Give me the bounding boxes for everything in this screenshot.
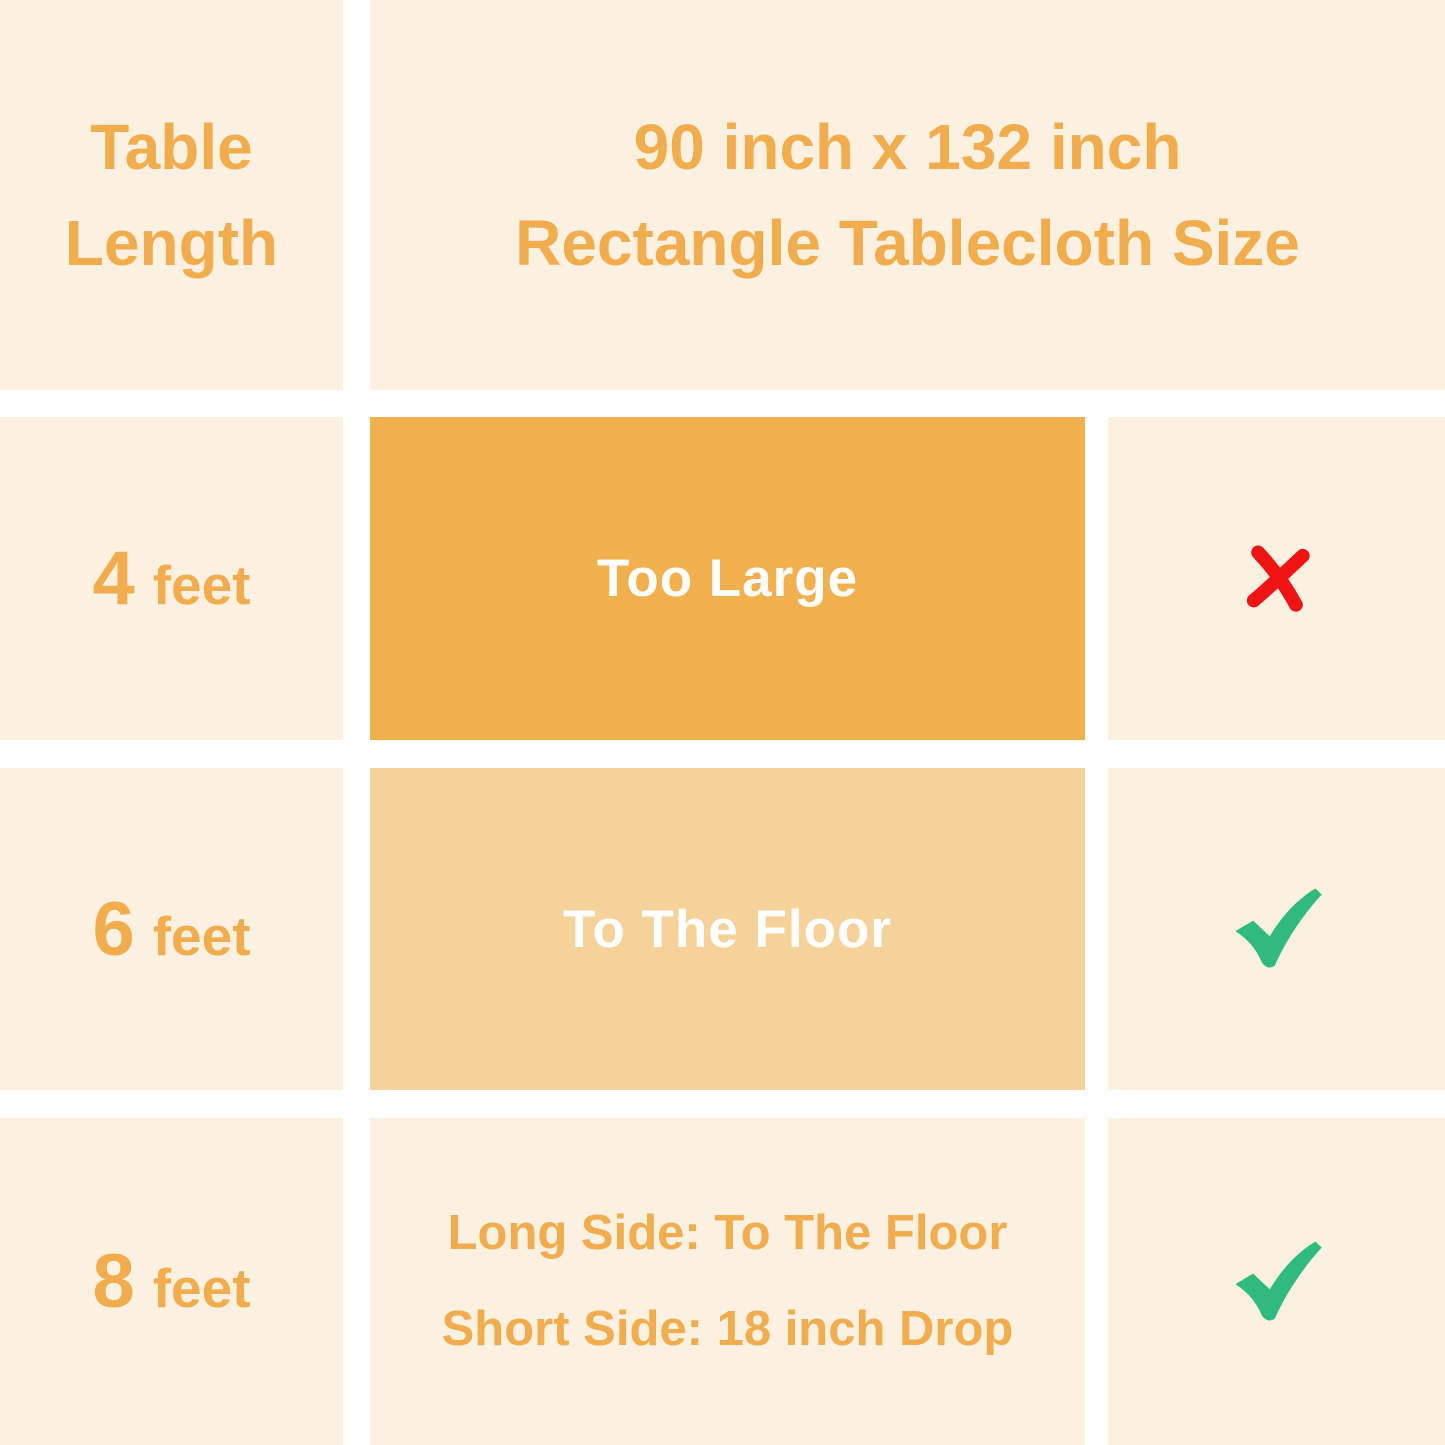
- row-4ft-verdict-cell: [1108, 417, 1445, 740]
- row-6ft-fit-label: To The Floor: [563, 899, 892, 960]
- row-6ft-length-value: 6: [92, 886, 134, 973]
- row-8ft-fit-line2: Short Side: 18 inch Drop: [442, 1282, 1014, 1378]
- row-6ft-length-label: 6 feet: [92, 886, 250, 973]
- row-6ft-length-cell: 6 feet: [0, 768, 343, 1090]
- row-8ft-length-unit: feet: [153, 1256, 251, 1320]
- header-tablecloth-size: 90 inch x 132 inch Rectangle Tablecloth …: [370, 0, 1445, 390]
- row-8ft-fit-cell: Long Side: To The Floor Short Side: 18 i…: [370, 1118, 1085, 1445]
- row-4ft-fit-cell: Too Large: [370, 417, 1085, 740]
- tablecloth-size-chart: Table Length 90 inch x 132 inch Rectangl…: [0, 0, 1445, 1445]
- cross-icon: [1234, 536, 1320, 622]
- header-table-length: Table Length: [0, 0, 343, 390]
- row-4ft-length-value: 4: [92, 535, 134, 622]
- row-8ft-length-cell: 8 feet: [0, 1118, 343, 1445]
- row-6ft-length-unit: feet: [153, 904, 251, 968]
- header-size-line2: Rectangle Tablecloth Size: [515, 195, 1300, 291]
- row-6ft-verdict-cell: [1108, 768, 1445, 1090]
- row-8ft-length-value: 8: [92, 1238, 134, 1325]
- row-4ft-fit-label: Too Large: [597, 548, 858, 609]
- header-table-length-line2: Length: [65, 195, 278, 291]
- check-icon: [1225, 877, 1329, 981]
- header-table-length-line1: Table: [90, 99, 252, 195]
- row-8ft-fit-line1: Long Side: To The Floor: [448, 1186, 1008, 1282]
- row-8ft-verdict-cell: [1108, 1118, 1445, 1445]
- check-icon: [1225, 1230, 1329, 1334]
- row-4ft-length-unit: feet: [153, 553, 251, 617]
- row-4ft-length-cell: 4 feet: [0, 417, 343, 740]
- row-6ft-fit-cell: To The Floor: [370, 768, 1085, 1090]
- row-8ft-length-label: 8 feet: [92, 1238, 250, 1325]
- row-4ft-length-label: 4 feet: [92, 535, 250, 622]
- header-size-line1: 90 inch x 132 inch: [634, 99, 1182, 195]
